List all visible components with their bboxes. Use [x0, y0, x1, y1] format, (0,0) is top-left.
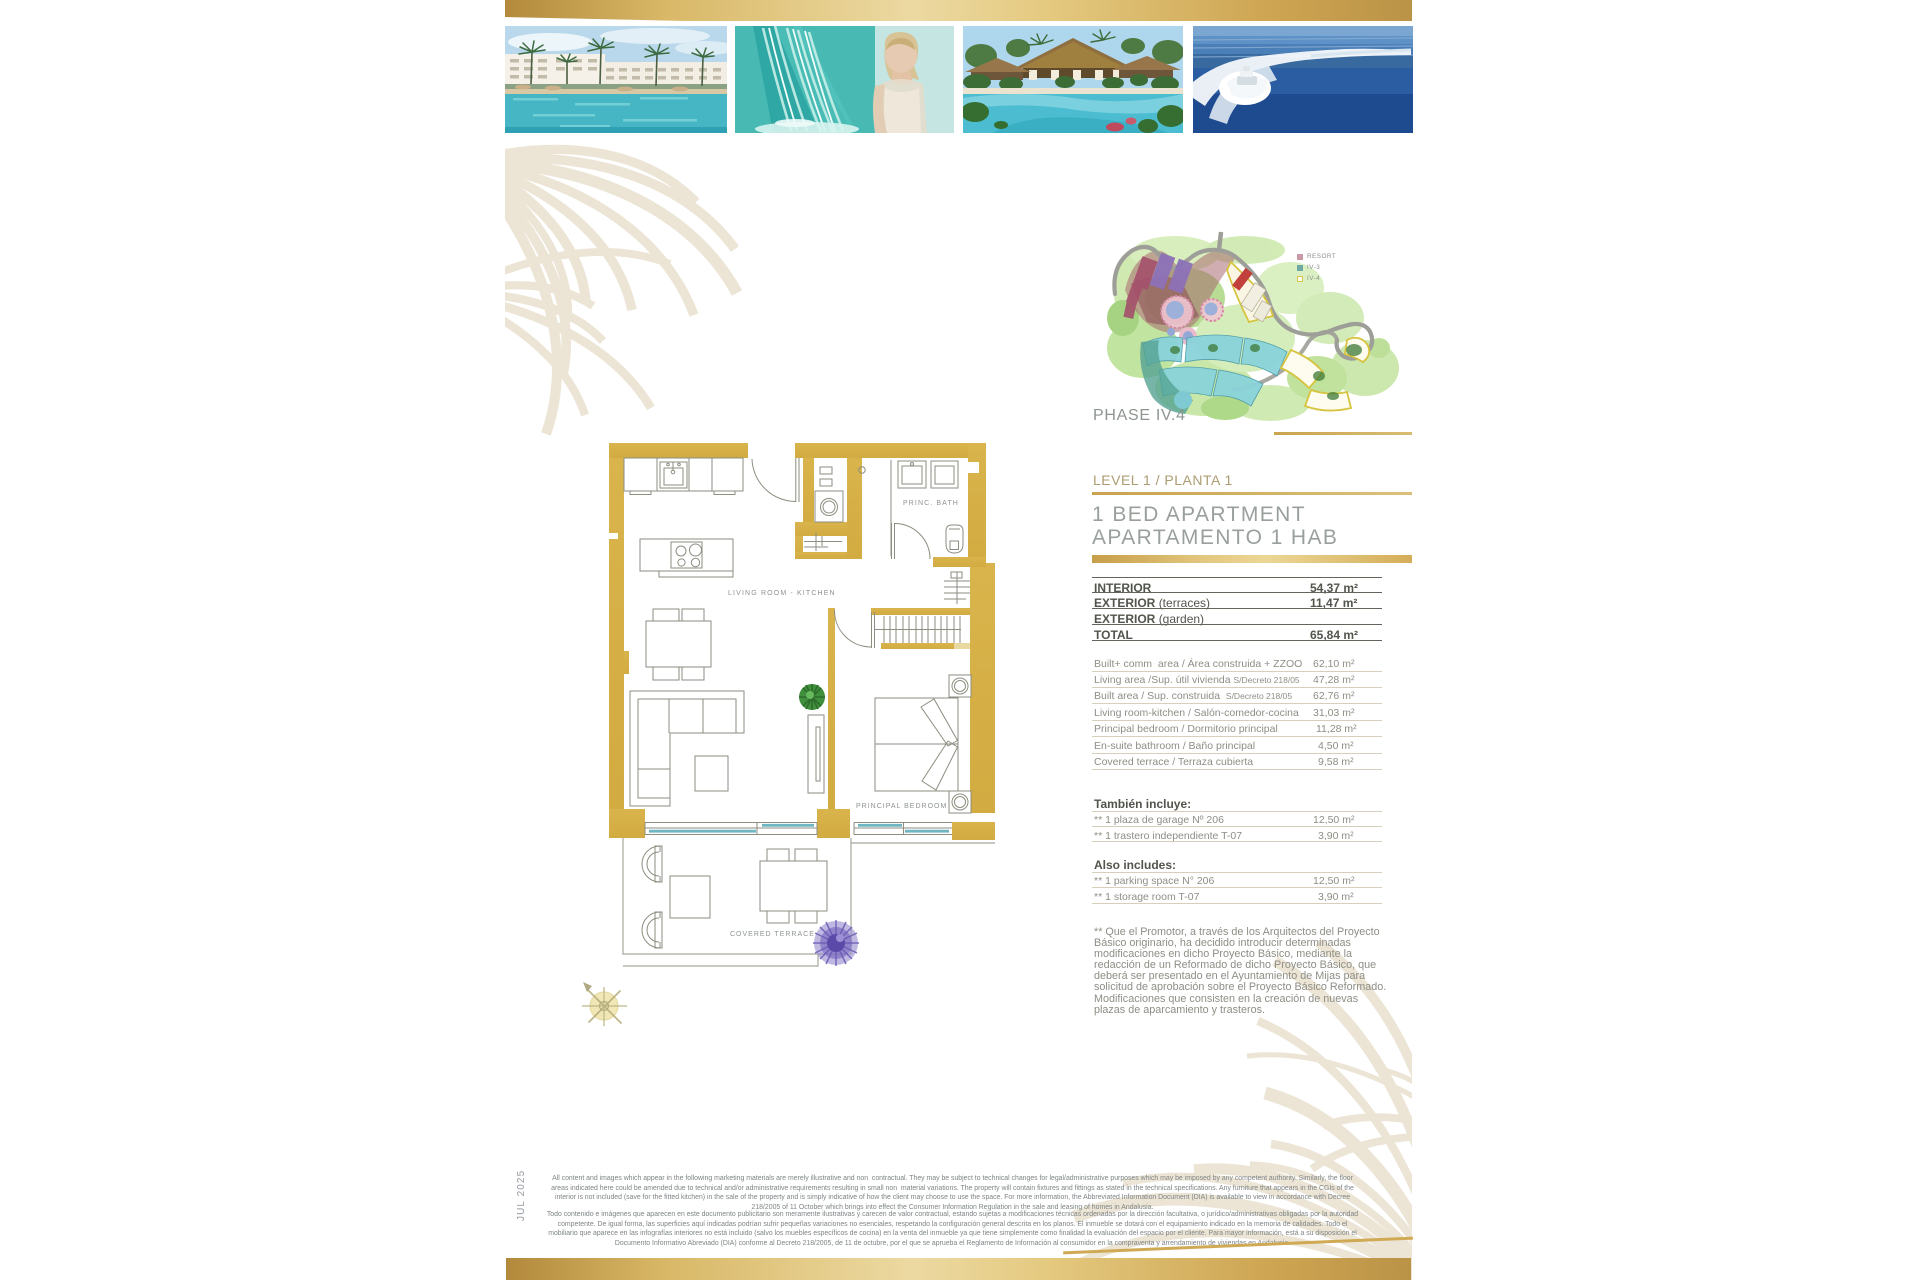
svg-text:LIVING ROOM - KITCHEN: LIVING ROOM - KITCHEN [728, 590, 836, 597]
svg-text:COVERED TERRACE: COVERED TERRACE [730, 931, 815, 938]
svg-text:PRINC. BATH: PRINC. BATH [903, 500, 959, 507]
svg-text:PRINCIPAL BEDROOM: PRINCIPAL BEDROOM [856, 803, 947, 810]
